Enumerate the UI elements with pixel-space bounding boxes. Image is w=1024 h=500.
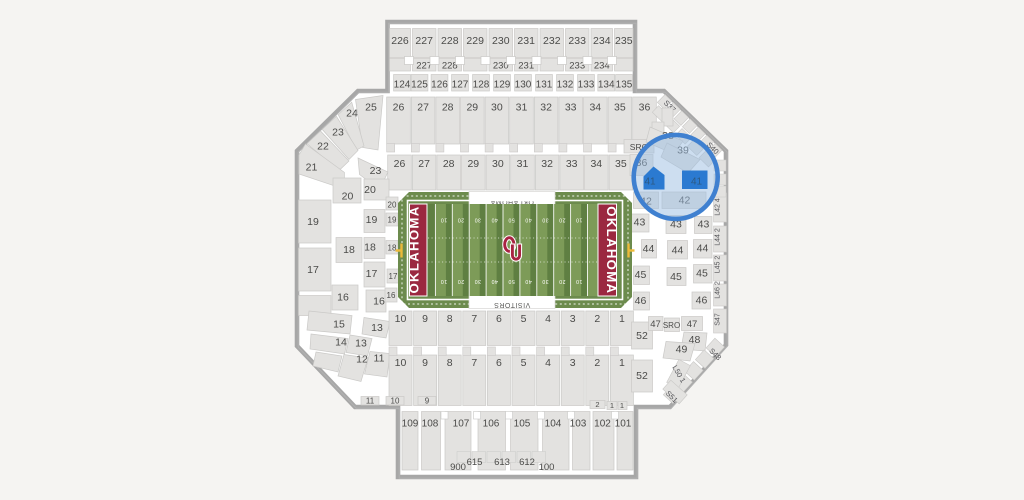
svg-text:16: 16 xyxy=(373,296,385,308)
svg-text:44: 44 xyxy=(643,243,655,255)
svg-text:15: 15 xyxy=(333,319,345,331)
svg-text:102: 102 xyxy=(594,419,611,430)
svg-text:235: 235 xyxy=(615,35,633,47)
svg-text:13: 13 xyxy=(355,338,367,350)
svg-text:20: 20 xyxy=(364,184,376,196)
svg-text:41: 41 xyxy=(691,177,703,188)
svg-text:40: 40 xyxy=(491,216,498,222)
svg-text:30: 30 xyxy=(474,278,481,284)
svg-text:101: 101 xyxy=(615,419,632,430)
svg-text:50: 50 xyxy=(508,278,515,284)
svg-text:16: 16 xyxy=(337,292,349,304)
svg-text:25: 25 xyxy=(365,102,377,114)
svg-text:10: 10 xyxy=(576,278,583,284)
svg-text:30: 30 xyxy=(491,102,503,114)
svg-text:20: 20 xyxy=(388,201,397,210)
svg-text:34: 34 xyxy=(589,102,601,114)
svg-text:L42 4: L42 4 xyxy=(715,198,722,216)
svg-text:4: 4 xyxy=(545,313,551,325)
svg-text:L45 2: L45 2 xyxy=(715,256,722,274)
svg-text:17: 17 xyxy=(389,272,398,281)
svg-text:9: 9 xyxy=(422,357,428,369)
svg-text:1: 1 xyxy=(619,313,625,325)
svg-text:26: 26 xyxy=(394,158,406,170)
svg-text:40: 40 xyxy=(525,216,532,222)
svg-text:40: 40 xyxy=(491,278,498,284)
svg-text:11: 11 xyxy=(374,353,385,365)
svg-text:47: 47 xyxy=(687,319,698,330)
svg-text:50: 50 xyxy=(508,216,515,222)
svg-text:52: 52 xyxy=(636,370,648,382)
svg-text:1: 1 xyxy=(620,401,624,410)
svg-text:34: 34 xyxy=(590,158,602,170)
svg-text:41: 41 xyxy=(644,177,656,188)
svg-text:43: 43 xyxy=(698,219,710,231)
svg-text:16: 16 xyxy=(387,291,396,300)
svg-text:11: 11 xyxy=(366,397,375,406)
svg-text:35: 35 xyxy=(614,102,626,114)
svg-text:19: 19 xyxy=(307,216,319,228)
svg-text:1: 1 xyxy=(619,357,625,369)
svg-text:226: 226 xyxy=(391,35,409,47)
svg-text:104: 104 xyxy=(545,419,562,430)
svg-text:20: 20 xyxy=(457,216,464,222)
svg-text:OKLAHOMA: OKLAHOMA xyxy=(604,206,619,294)
svg-text:19: 19 xyxy=(388,216,397,225)
svg-text:19: 19 xyxy=(366,214,378,226)
svg-text:12: 12 xyxy=(356,354,368,366)
svg-text:27: 27 xyxy=(418,158,430,170)
svg-text:232: 232 xyxy=(543,35,561,47)
svg-text:20: 20 xyxy=(457,278,464,284)
svg-text:28: 28 xyxy=(442,102,454,114)
svg-text:33: 33 xyxy=(565,102,577,114)
svg-text:2: 2 xyxy=(594,357,600,369)
svg-text:3: 3 xyxy=(570,357,576,369)
svg-text:45: 45 xyxy=(696,268,708,280)
svg-text:8: 8 xyxy=(447,313,453,325)
svg-text:OKLAHOMA: OKLAHOMA xyxy=(407,205,422,293)
svg-text:5: 5 xyxy=(521,357,527,369)
svg-text:47: 47 xyxy=(650,319,661,330)
svg-text:10: 10 xyxy=(391,397,400,406)
svg-text:26: 26 xyxy=(393,102,405,114)
svg-text:103: 103 xyxy=(570,419,587,430)
svg-text:33: 33 xyxy=(566,158,578,170)
svg-text:231: 231 xyxy=(517,35,535,47)
svg-text:18: 18 xyxy=(364,242,376,254)
svg-text:1: 1 xyxy=(610,401,614,410)
svg-text:2: 2 xyxy=(595,400,599,409)
svg-text:32: 32 xyxy=(541,158,553,170)
svg-text:127: 127 xyxy=(452,80,469,91)
svg-text:17: 17 xyxy=(366,268,378,280)
svg-text:107: 107 xyxy=(453,419,470,430)
svg-text:46: 46 xyxy=(635,295,647,307)
svg-text:615: 615 xyxy=(467,457,483,468)
svg-text:VISITORS: VISITORS xyxy=(494,301,531,308)
svg-text:30: 30 xyxy=(492,158,504,170)
svg-text:10: 10 xyxy=(440,216,447,222)
svg-text:23: 23 xyxy=(332,127,344,139)
svg-text:106: 106 xyxy=(483,419,500,430)
svg-text:128: 128 xyxy=(473,80,490,91)
svg-text:28: 28 xyxy=(443,158,455,170)
svg-text:228: 228 xyxy=(441,35,459,47)
svg-text:8: 8 xyxy=(447,357,453,369)
svg-text:126: 126 xyxy=(431,80,448,91)
svg-text:6: 6 xyxy=(496,313,502,325)
svg-text:10: 10 xyxy=(576,216,583,222)
svg-text:43: 43 xyxy=(634,217,646,229)
svg-text:7: 7 xyxy=(471,357,477,369)
svg-text:6: 6 xyxy=(496,357,502,369)
svg-text:612: 612 xyxy=(519,457,535,468)
svg-text:100: 100 xyxy=(539,462,555,473)
svg-text:900: 900 xyxy=(450,462,466,473)
svg-text:31: 31 xyxy=(517,158,529,170)
svg-text:24: 24 xyxy=(346,108,358,120)
svg-text:36: 36 xyxy=(639,102,651,114)
svg-text:31: 31 xyxy=(516,102,528,114)
svg-text:129: 129 xyxy=(494,80,511,91)
svg-text:S47: S47 xyxy=(715,313,722,326)
svg-text:227: 227 xyxy=(415,35,433,47)
svg-text:18: 18 xyxy=(343,244,355,256)
svg-text:30: 30 xyxy=(542,278,549,284)
svg-text:20: 20 xyxy=(342,191,354,203)
svg-text:45: 45 xyxy=(670,271,682,283)
svg-text:27: 27 xyxy=(417,102,429,114)
svg-text:49: 49 xyxy=(676,344,688,356)
svg-text:13: 13 xyxy=(371,322,383,334)
svg-text:21: 21 xyxy=(306,162,318,174)
svg-text:46: 46 xyxy=(696,295,708,307)
svg-text:5: 5 xyxy=(521,313,527,325)
svg-text:44: 44 xyxy=(672,245,684,257)
svg-text:125: 125 xyxy=(411,80,428,91)
svg-text:SRO: SRO xyxy=(663,321,680,330)
svg-text:233: 233 xyxy=(568,35,586,47)
svg-text:17: 17 xyxy=(307,264,319,276)
svg-text:45: 45 xyxy=(635,269,647,281)
svg-text:30: 30 xyxy=(542,216,549,222)
svg-text:7: 7 xyxy=(471,313,477,325)
svg-text:14: 14 xyxy=(335,337,347,349)
svg-text:20: 20 xyxy=(559,216,566,222)
svg-text:105: 105 xyxy=(514,419,531,430)
svg-text:3: 3 xyxy=(570,313,576,325)
svg-text:229: 229 xyxy=(466,35,484,47)
svg-text:130: 130 xyxy=(515,80,532,91)
svg-text:109: 109 xyxy=(402,419,419,430)
svg-text:30: 30 xyxy=(474,216,481,222)
svg-text:2: 2 xyxy=(594,313,600,325)
svg-text:44: 44 xyxy=(697,243,709,255)
svg-text:OKLAHOMA: OKLAHOMA xyxy=(490,198,534,205)
svg-text:124: 124 xyxy=(394,80,411,91)
svg-text:131: 131 xyxy=(536,80,553,91)
svg-text:L44 2: L44 2 xyxy=(715,228,722,246)
svg-text:40: 40 xyxy=(525,278,532,284)
svg-text:10: 10 xyxy=(395,357,407,369)
svg-text:108: 108 xyxy=(422,419,439,430)
svg-text:29: 29 xyxy=(466,102,478,114)
svg-text:35: 35 xyxy=(615,158,627,170)
svg-text:29: 29 xyxy=(467,158,479,170)
svg-text:234: 234 xyxy=(593,35,611,47)
svg-text:613: 613 xyxy=(494,457,510,468)
svg-text:230: 230 xyxy=(492,35,510,47)
svg-text:10: 10 xyxy=(395,313,407,325)
svg-text:132: 132 xyxy=(557,80,574,91)
svg-text:135: 135 xyxy=(616,80,633,91)
svg-text:20: 20 xyxy=(559,278,566,284)
svg-text:133: 133 xyxy=(578,80,595,91)
svg-text:52: 52 xyxy=(636,330,648,342)
svg-text:9: 9 xyxy=(422,313,428,325)
svg-text:32: 32 xyxy=(540,102,552,114)
svg-text:22: 22 xyxy=(317,141,329,153)
svg-text:10: 10 xyxy=(440,278,447,284)
svg-text:L46 2: L46 2 xyxy=(715,281,722,299)
svg-text:4: 4 xyxy=(545,357,551,369)
svg-text:23: 23 xyxy=(370,165,382,177)
svg-text:9: 9 xyxy=(425,397,430,406)
svg-text:134: 134 xyxy=(598,80,615,91)
